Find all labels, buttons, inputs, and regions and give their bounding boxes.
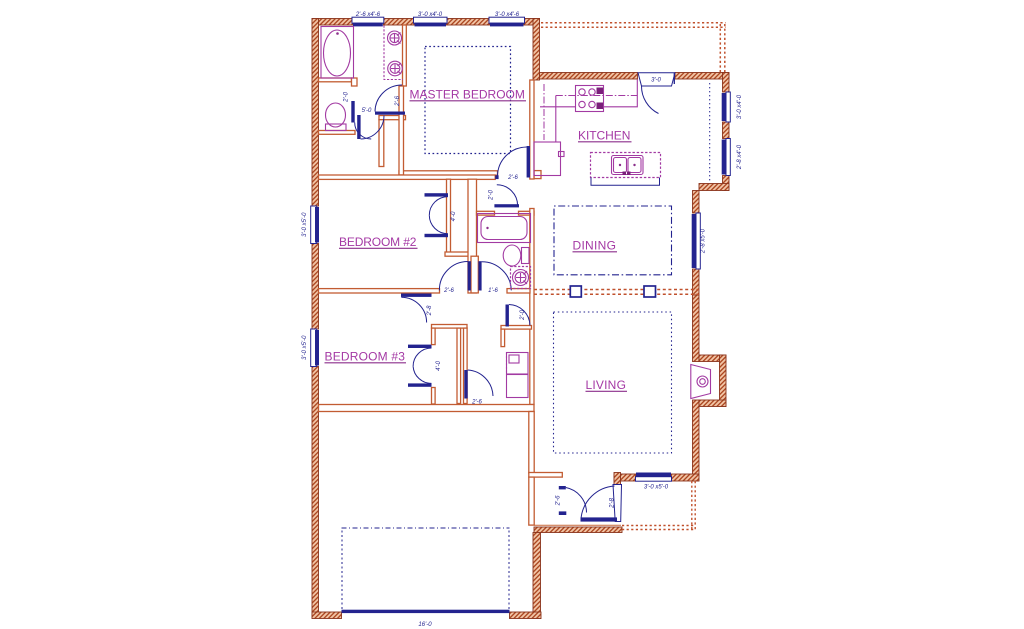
svg-text:3'-0: 3'-0 [651,78,661,84]
svg-text:3'-0 x5'-0: 3'-0 x5'-0 [644,485,669,491]
svg-text:MASTER BEDROOM: MASTER BEDROOM [410,88,526,102]
svg-text:5'-0: 5'-0 [362,108,372,114]
svg-text:3'-0 x5'-0: 3'-0 x5'-0 [302,212,308,237]
svg-text:3'-0 x4'-0: 3'-0 x4'-0 [737,94,743,119]
svg-text:2'-8: 2'-8 [427,305,433,316]
svg-text:2'-6: 2'-6 [443,288,454,294]
svg-text:4'-0: 4'-0 [436,360,442,370]
svg-text:1'-6: 1'-6 [488,288,498,294]
svg-text:2'-0: 2'-0 [520,309,526,320]
svg-text:LIVING: LIVING [586,378,627,392]
svg-text:16'-0: 16'-0 [418,622,432,628]
svg-text:3'-0 x4'-6: 3'-0 x4'-6 [495,12,520,18]
svg-text:3'-0 x5'-0: 3'-0 x5'-0 [302,335,308,360]
svg-text:3'-0 x4'-0: 3'-0 x4'-0 [418,12,443,18]
svg-text:2'-6: 2'-6 [507,175,518,181]
svg-text:2'-0: 2'-0 [344,91,350,102]
svg-text:DINING: DINING [573,239,617,253]
svg-text:4'-0: 4'-0 [451,211,457,221]
svg-text:2'-0: 2'-0 [488,189,494,200]
svg-text:KITCHEN: KITCHEN [578,129,631,143]
svg-text:2'-6: 2'-6 [556,495,562,506]
svg-text:2'-6: 2'-6 [395,95,401,106]
svg-text:2'-8 x4'-0: 2'-8 x4'-0 [737,144,743,170]
svg-text:BEDROOM #3: BEDROOM #3 [325,350,406,364]
svg-text:2'-6 x4'-6: 2'-6 x4'-6 [355,12,381,18]
svg-text:2'-8: 2'-8 [610,497,616,508]
svg-text:2'-8 x5'-0: 2'-8 x5'-0 [701,228,707,254]
svg-text:BEDROOM #2: BEDROOM #2 [339,235,417,249]
svg-text:2'-6: 2'-6 [471,400,482,406]
